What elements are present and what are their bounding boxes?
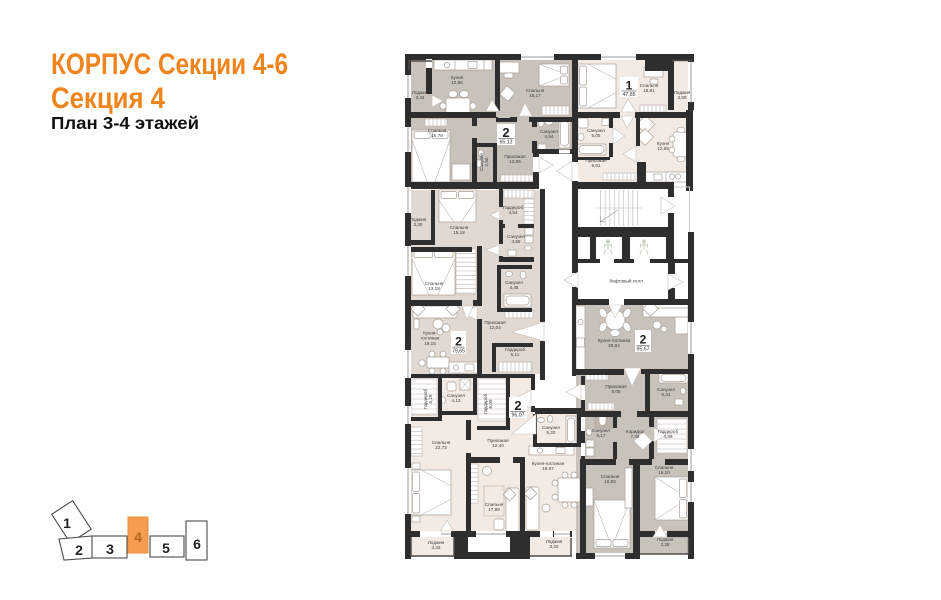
svg-text:2: 2 — [75, 542, 83, 558]
svg-text:2: 2 — [514, 398, 521, 413]
svg-text:Секция 4: Секция 4 — [51, 82, 165, 115]
svg-text:КОРПУС Секции 4-6: КОРПУС Секции 4-6 — [51, 48, 288, 81]
svg-text:65,13: 65,13 — [500, 140, 513, 146]
svg-text:5: 5 — [162, 540, 170, 556]
svg-text:4: 4 — [134, 529, 142, 545]
svg-text:95,67: 95,67 — [637, 347, 650, 353]
svg-text:Кухня12,55: Кухня12,55 — [657, 141, 670, 151]
svg-text:79,65: 79,65 — [452, 349, 465, 355]
svg-text:1: 1 — [63, 515, 71, 531]
svg-text:2: 2 — [455, 334, 462, 348]
svg-text:2: 2 — [502, 125, 509, 140]
svg-text:Лифтовый холл: Лифтовый холл — [609, 278, 643, 284]
svg-text:47,85: 47,85 — [623, 92, 636, 98]
svg-text:6: 6 — [193, 536, 201, 552]
svg-text:1: 1 — [626, 78, 633, 92]
svg-text:96,07: 96,07 — [512, 413, 525, 419]
svg-text:План 3-4 этажей: План 3-4 этажей — [51, 113, 199, 133]
svg-text:3: 3 — [106, 541, 114, 557]
svg-text:Кухня12,96: Кухня12,96 — [451, 75, 464, 85]
svg-text:2: 2 — [640, 333, 647, 347]
